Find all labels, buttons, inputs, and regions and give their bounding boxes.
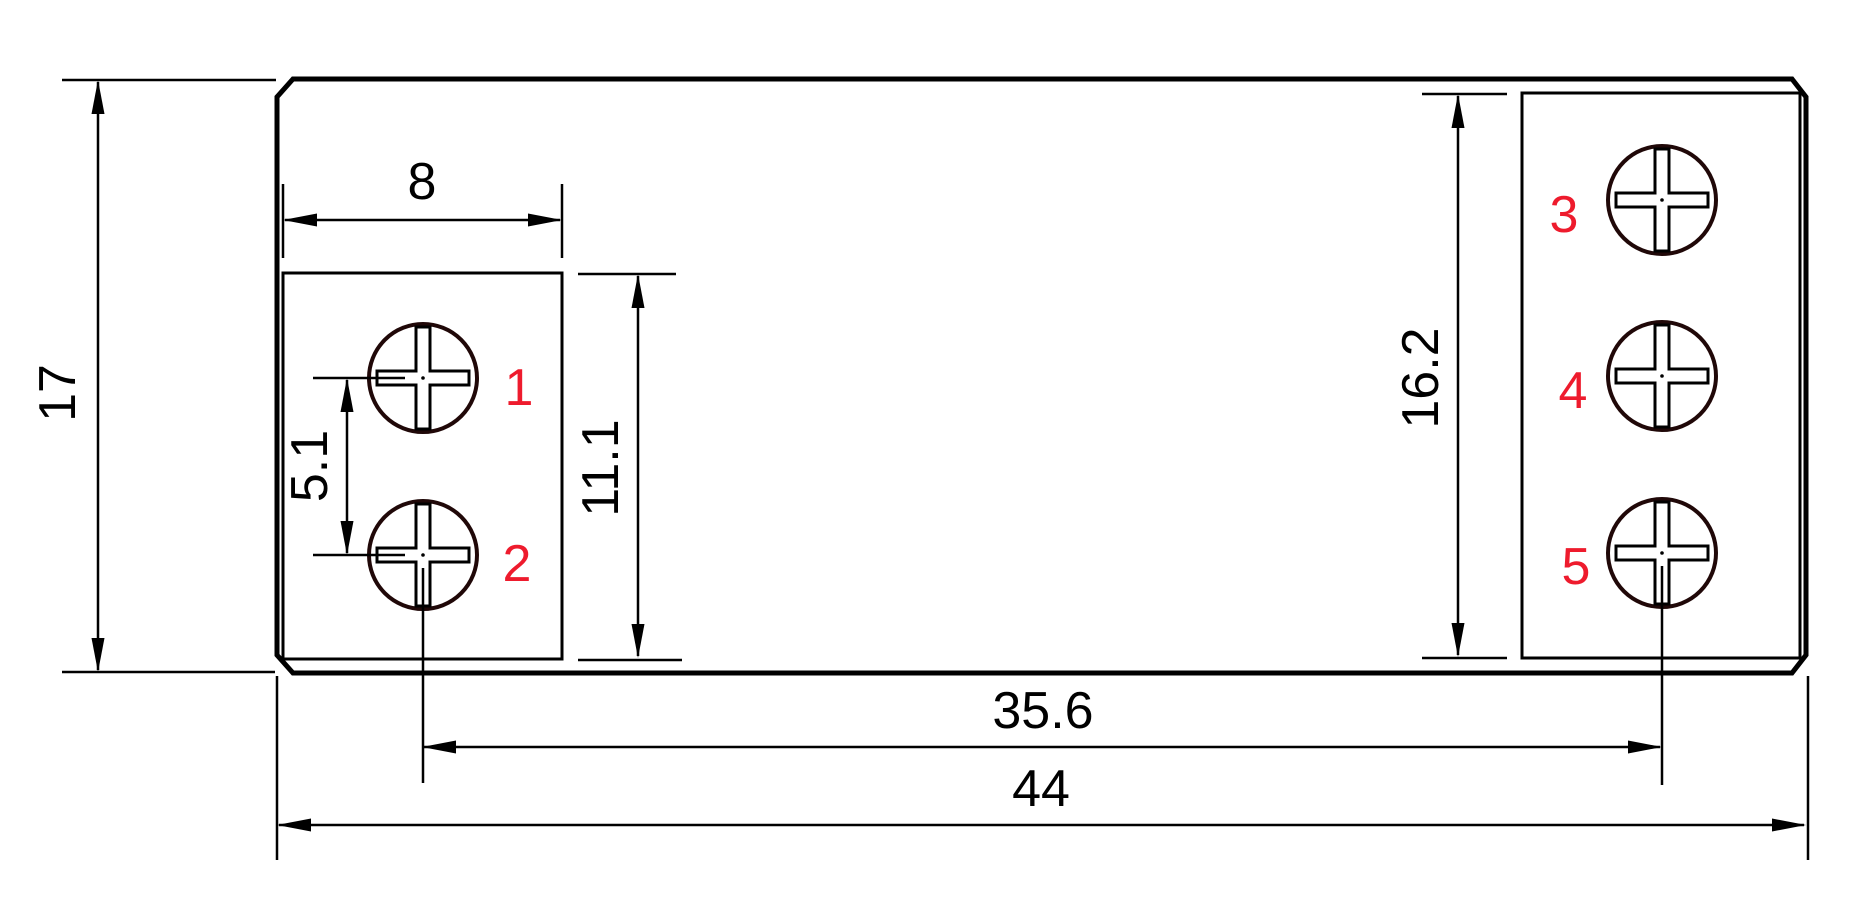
arrowhead-right-icon	[1628, 741, 1662, 754]
arrowhead-right-icon	[1772, 819, 1806, 832]
dimension-right-box-height: 16.2	[1392, 94, 1507, 658]
dim-value-44: 44	[1012, 760, 1070, 818]
terminal-label-2: 2	[503, 535, 532, 593]
arrowhead-left-icon	[283, 214, 317, 227]
drawing-canvas: 17 8 5.1 11.1 16.2 35.6	[0, 0, 1866, 901]
screw-center-dot	[1660, 198, 1664, 202]
arrowhead-up-icon	[92, 80, 105, 114]
terminal-label-3: 3	[1550, 186, 1579, 244]
arrowhead-left-icon	[422, 741, 456, 754]
screw-terminal-4	[1608, 322, 1716, 430]
arrowhead-left-icon	[277, 819, 311, 832]
dimension-hole-span: 35.6	[422, 682, 1662, 753]
arrowhead-right-icon	[528, 214, 562, 227]
dimension-overall-height: 17	[29, 80, 276, 672]
screw-center-dot	[421, 376, 425, 380]
terminal-label-1: 1	[505, 359, 534, 417]
terminal-label-4: 4	[1559, 362, 1588, 420]
dim-value-8: 8	[408, 153, 437, 211]
screw-terminals	[369, 146, 1716, 609]
dimension-left-box-width: 8	[283, 153, 562, 258]
screw-center-dot	[1660, 551, 1664, 555]
terminal-label-5: 5	[1562, 538, 1591, 596]
arrowhead-down-icon	[632, 624, 645, 658]
screw-center-dot	[421, 553, 425, 557]
technical-drawing: 17 8 5.1 11.1 16.2 35.6	[0, 0, 1866, 901]
screw-center-dot	[1660, 374, 1664, 378]
arrowhead-down-icon	[341, 521, 354, 555]
dim-value-5-1: 5.1	[281, 430, 339, 502]
arrowhead-up-icon	[341, 378, 354, 412]
arrowhead-up-icon	[1452, 94, 1465, 128]
dimension-left-box-height: 11.1	[572, 274, 682, 660]
dimension-hole-spacing: 5.1	[281, 378, 353, 555]
arrowhead-down-icon	[1452, 623, 1465, 657]
dim-value-16-2: 16.2	[1392, 327, 1450, 428]
dim-value-11-1: 11.1	[572, 419, 630, 516]
dim-value-17: 17	[29, 364, 87, 422]
arrowhead-down-icon	[92, 638, 105, 672]
dim-value-35-6: 35.6	[992, 682, 1093, 740]
screw-terminal-3	[1608, 146, 1716, 254]
arrowhead-up-icon	[632, 274, 645, 308]
